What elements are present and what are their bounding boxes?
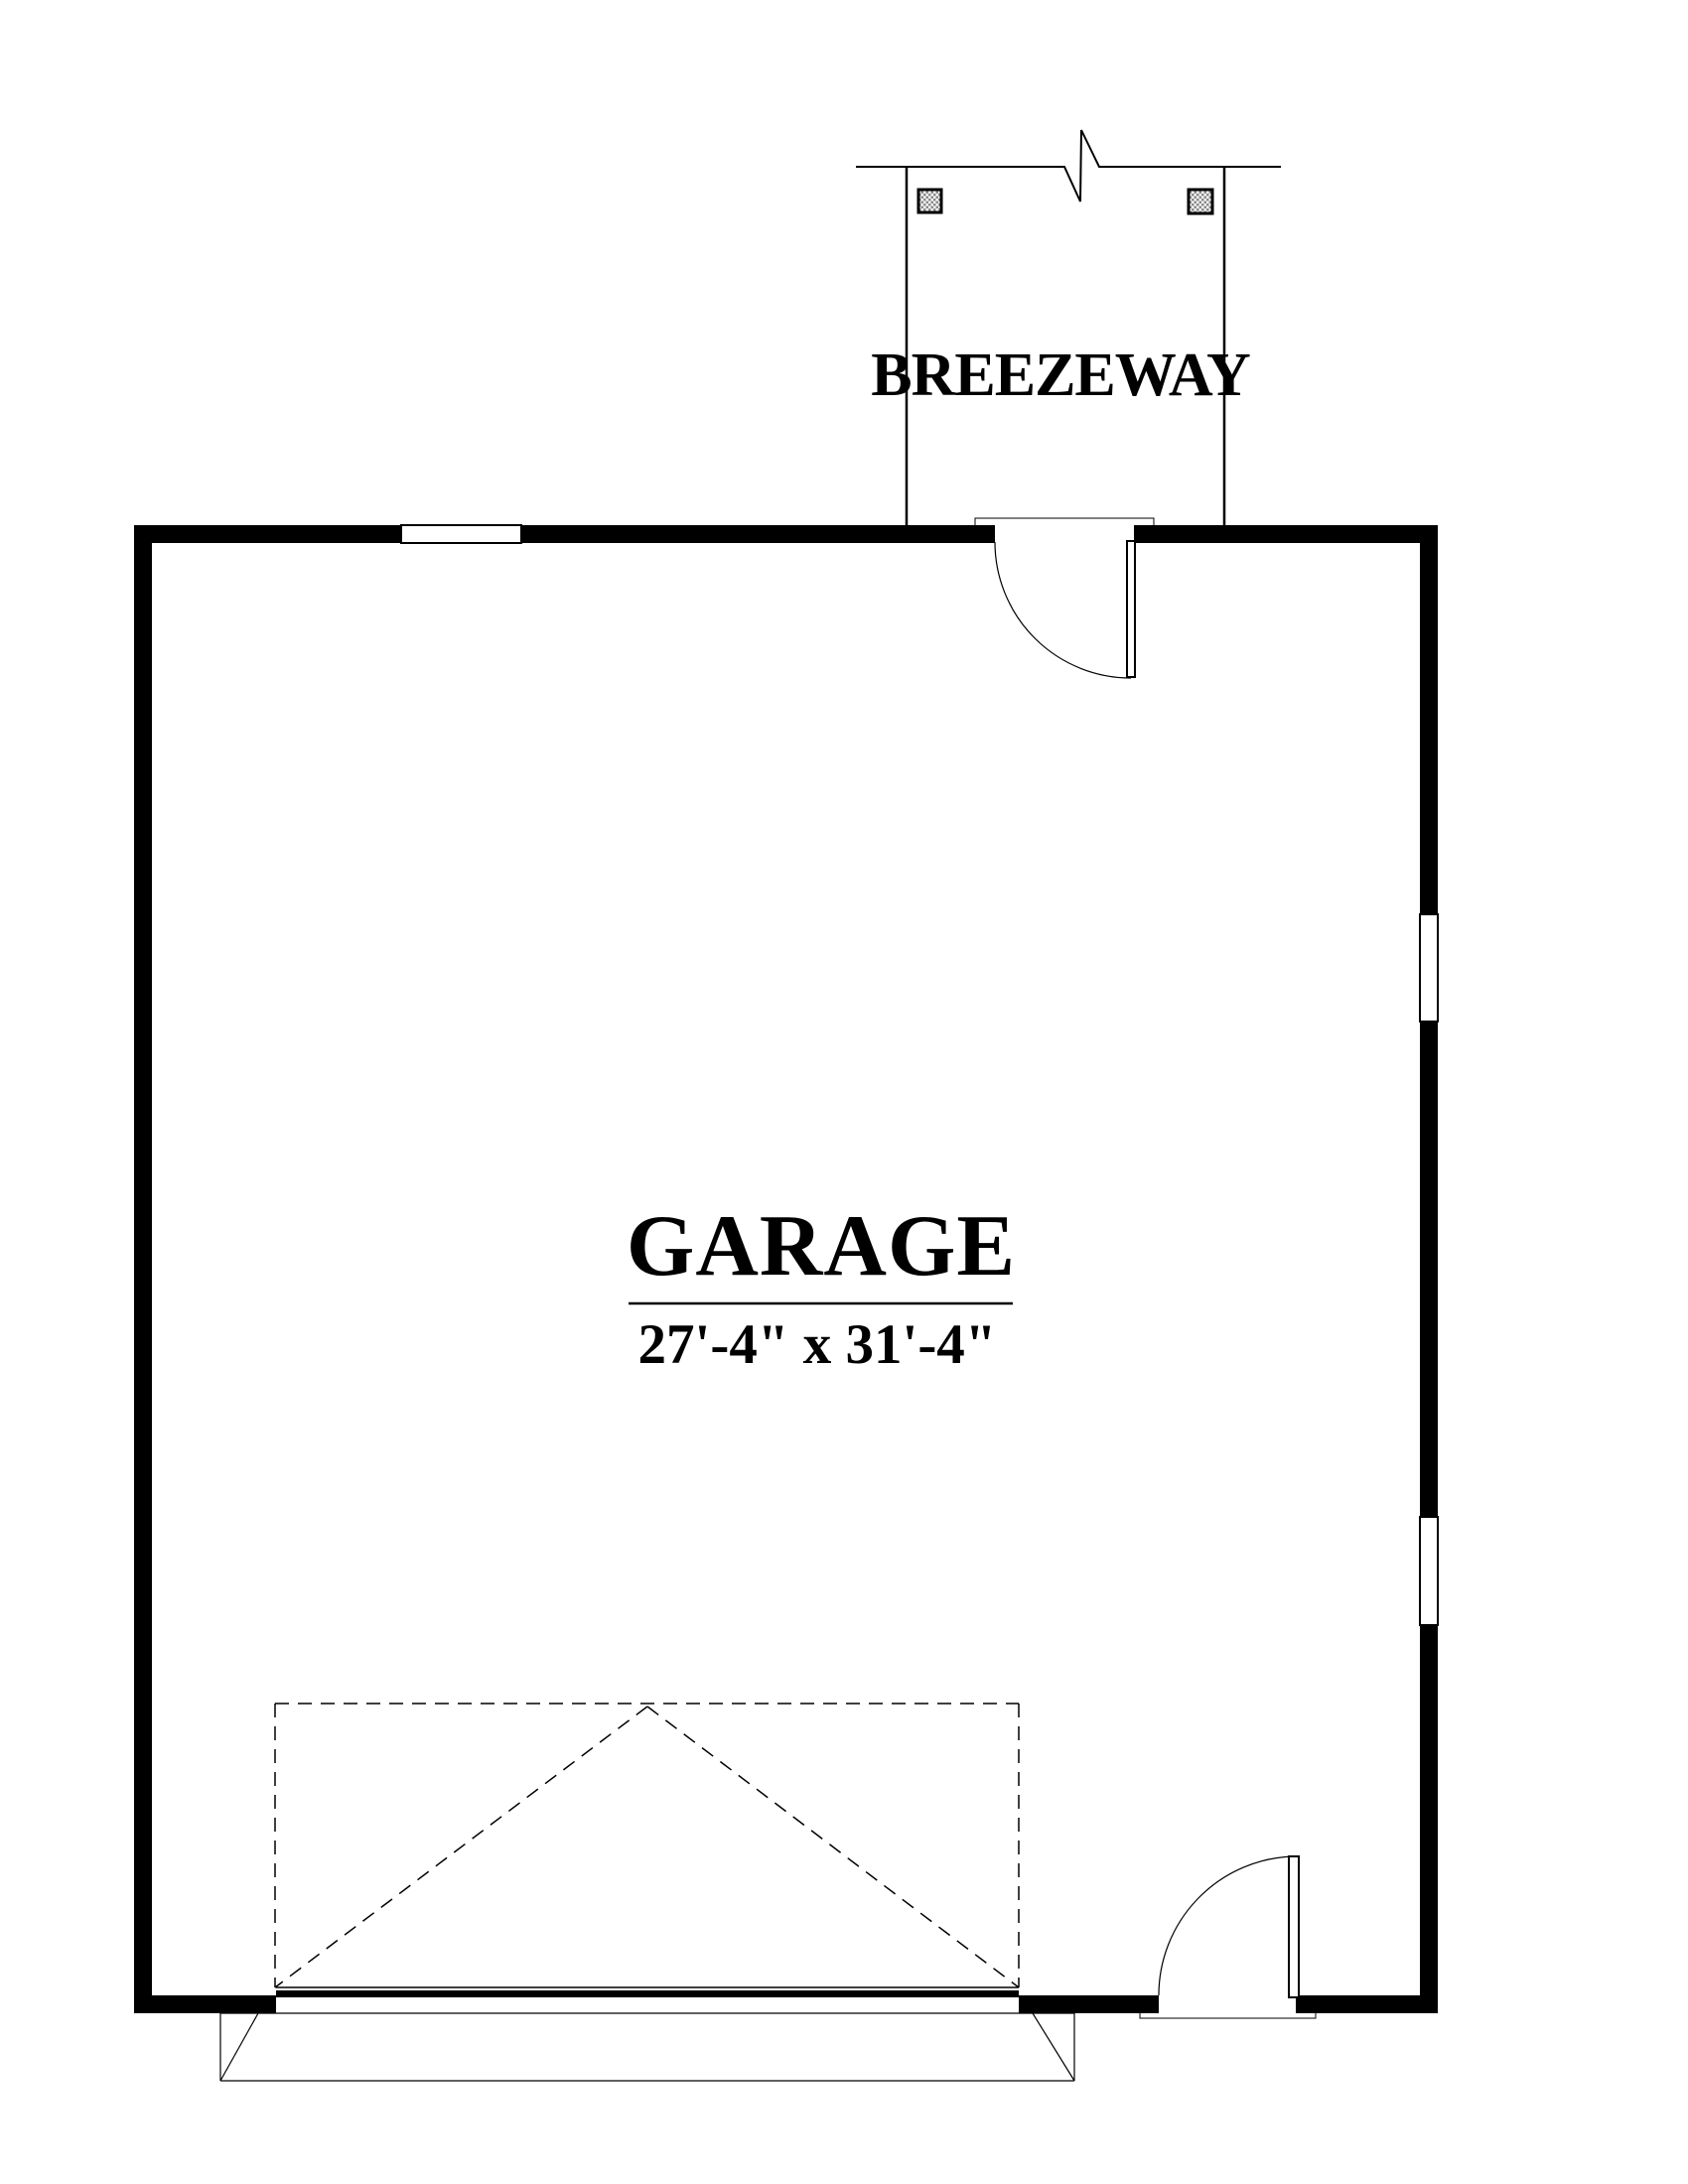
overhead-garage-door xyxy=(275,1704,1019,1997)
wall-top-left-segment xyxy=(134,525,401,543)
wall-top-middle-segment xyxy=(521,525,995,543)
garage-door-overhead-track-dashed xyxy=(275,1704,1019,1987)
apron-left-flare xyxy=(220,2013,258,2081)
dashed-diagonal-right xyxy=(647,1706,1019,1987)
wall-bottom-middle-segment xyxy=(1019,1995,1159,2013)
garage-door-panel xyxy=(276,1990,1019,1997)
floor-plan: BREEZEWAY GARAGE 27'-4" x 31'-4" xyxy=(0,0,1688,2184)
floor-plan-drawing xyxy=(0,0,1688,2184)
post-hatched-left xyxy=(918,190,941,212)
wall-bottom-right-segment xyxy=(1296,1995,1438,2013)
apron-right-flare xyxy=(1033,2013,1074,2081)
door-breezeway xyxy=(975,518,1154,678)
windows xyxy=(401,525,1438,1625)
wall-right-middle-segment xyxy=(1420,1022,1438,1517)
window-top-wall xyxy=(401,525,521,543)
window-right-wall-upper xyxy=(1420,914,1438,1022)
door-leaf-top xyxy=(1127,541,1135,677)
window-right-wall-lower xyxy=(1420,1517,1438,1625)
room-name-label: GARAGE xyxy=(523,1203,1119,1291)
driveway-apron xyxy=(220,2013,1074,2081)
door-swing-arc-bottom xyxy=(1159,1856,1294,1995)
wall-bottom-left-segment xyxy=(134,1995,276,2013)
door-threshold-top xyxy=(975,518,1154,528)
door-stoop xyxy=(1140,2013,1316,2018)
door-swing-arc-top xyxy=(995,542,1131,678)
breezeway-label: BREEZEWAY xyxy=(812,344,1309,406)
breezeway xyxy=(856,130,1281,525)
door-leaf-bottom xyxy=(1289,1856,1299,1997)
post-hatched-right xyxy=(1189,190,1212,213)
wall-right-upper-segment xyxy=(1420,525,1438,914)
room-dimensions-label: 27'-4" x 31'-4" xyxy=(519,1316,1115,1373)
wall-left xyxy=(134,525,152,2013)
wall-right-lower-segment xyxy=(1420,1625,1438,2013)
wall-top-right-segment xyxy=(1134,525,1438,543)
dashed-diagonal-left xyxy=(275,1706,647,1987)
door-service xyxy=(1140,1856,1316,2018)
